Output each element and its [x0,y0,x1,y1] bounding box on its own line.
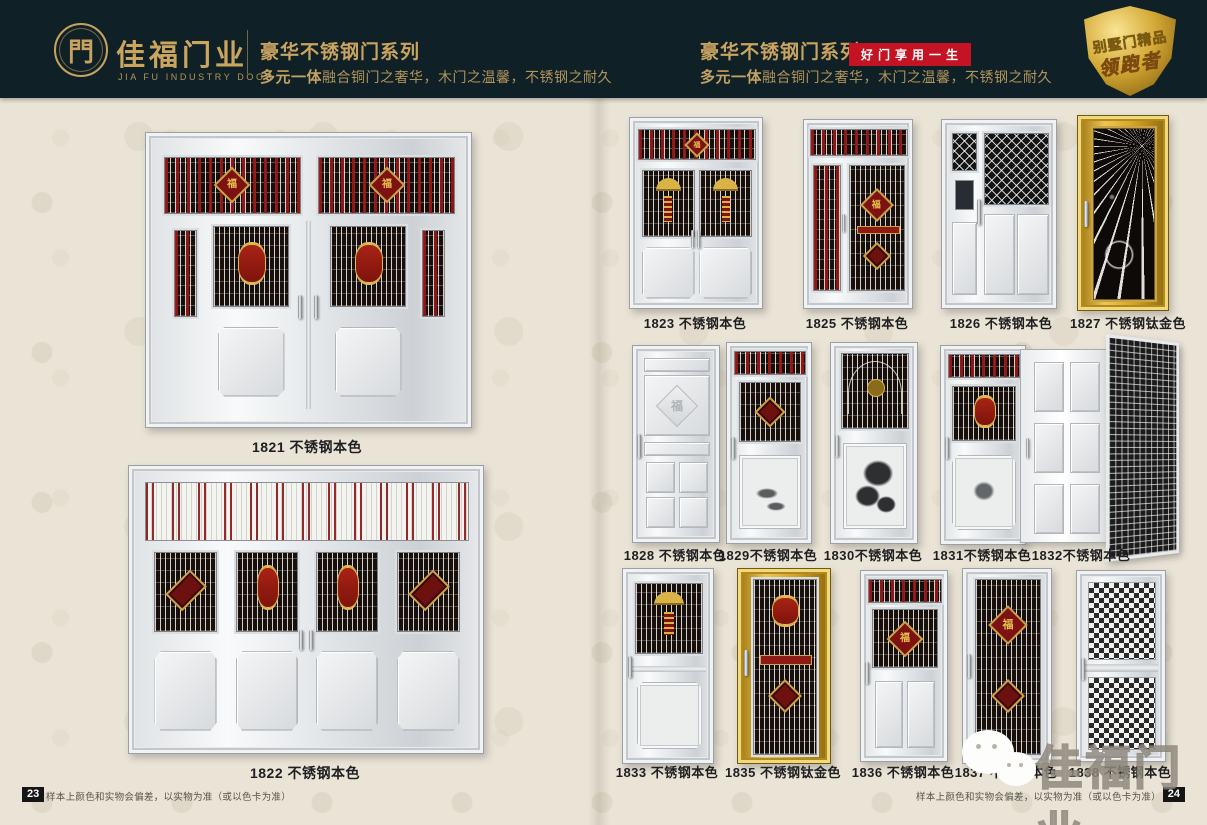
page-gutter-shadow [588,98,610,825]
door-window-grille [236,552,298,631]
series-tagline-left: 多元一体融合铜门之奢华，木门之温馨，不锈钢之耐久 [260,66,612,87]
door-1832-image [1020,345,1170,545]
door-glyph-icon: 門 [68,32,94,69]
door-1835-image [737,568,831,764]
door-window-grille [699,170,752,237]
raised-panel [1070,362,1101,412]
emboss-square [646,497,676,528]
door-window-grille [952,386,1016,441]
door-1831-image [940,345,1026,545]
catalog-spread: 門 佳福门业 JIA FU INDUSTRY DOOR 豪华不锈钢门系列 多元一… [0,0,1207,825]
lantern-motif [974,397,996,426]
door-1830-image [830,342,918,544]
door-handle [309,630,313,650]
door-handle [865,662,869,684]
brand-logo: 門 [54,23,108,77]
door-handle [835,435,839,457]
emboss-panel [316,651,378,730]
wechat-icon [962,726,1042,804]
emboss-panel [154,651,216,730]
transom-grille [810,129,907,155]
door-window-grille: 福 [872,609,938,668]
series-title-left: 豪华不锈钢门系列 [260,37,420,64]
screen-door-mesh [1106,334,1179,562]
watermark-text: 佳福门业 [1036,732,1207,825]
emboss-panel [952,222,977,295]
knot-diamond-motif [408,570,450,612]
door-1823-image: 福 [629,117,763,309]
door-handle [299,630,303,650]
series-title-right: 豪华不锈钢门系列 [700,37,860,64]
tassel-motif [722,196,730,222]
fu-diamond: 福 [368,167,405,204]
raised-panel [1034,362,1065,412]
door-caption-1833: 1833 不锈钢本色 [616,762,719,781]
door-caption-1831: 1831不锈钢本色 [933,545,1031,564]
etched-panel-fish [739,455,801,529]
etched-panel-boat [952,455,1016,530]
door-1836-image: 福 [860,570,948,762]
fu-character: 福 [900,634,910,644]
door-window-grille [739,382,801,442]
door-window-grille [753,579,818,756]
transom-grille [948,354,1021,378]
fu-character: 福 [227,180,237,190]
door-caption-1836: 1836 不锈钢本色 [852,762,955,781]
fu-diamond: 福 [988,605,1028,645]
tagline-rest: 融合铜门之奢华，木门之温馨，不锈钢之耐久 [762,69,1052,85]
door-handle [977,199,981,225]
arched-window-grille [841,353,908,429]
lantern-motif [772,597,799,625]
gold-fan-motif [656,178,681,191]
header-band: 門 佳福门业 JIA FU INDUSTRY DOOR 豪华不锈钢门系列 多元一… [0,0,1207,98]
series-tagline-right: 多元一体融合铜门之奢华，木门之温馨，不锈钢之耐久 [700,66,1052,87]
emboss-panel [699,247,752,298]
door-caption-1835: 1835 不锈钢钛金色 [725,762,841,781]
mid-rail [1084,664,1158,672]
fu-character: 福 [671,400,683,412]
door-handle [314,295,318,319]
emboss-panel [984,214,1015,295]
emboss-panel [236,651,298,730]
door-1821-image: 福 福 [145,132,472,428]
emboss-square [679,462,709,493]
emboss-strip [644,358,710,372]
lattice-window [952,133,977,171]
peacock-swirl-window [1093,128,1154,301]
corner-badge-shield: 别墅门精品 领跑者 [1084,6,1176,96]
door-handle [945,437,949,459]
raised-panel [1034,423,1065,473]
door-caption-1830: 1830不锈钢本色 [824,545,922,564]
door-handle [691,230,694,248]
door-caption-1832: 1832不锈钢本色 [1032,545,1130,564]
fu-character: 福 [693,141,700,148]
fu-diamond: 福 [684,132,709,157]
fu-diamond: 福 [860,188,894,222]
red-diamond-motif [754,396,785,427]
brand-name: 佳福门业 [116,32,248,74]
door-1827-image [1077,115,1169,311]
door-caption-1827: 1827 不锈钢钛金色 [1070,313,1186,332]
door-window-grille [330,226,407,307]
six-panel-door [1020,349,1112,543]
side-panel-grille [422,230,445,317]
door-window-grille [397,552,459,631]
door-1822-image [128,465,484,754]
red-band-motif [857,226,900,234]
page-number-left: 23 [22,787,44,802]
transom-grille-light [145,482,469,541]
slogan-badge: 好门享用一生 [849,43,971,66]
door-caption-1825: 1825 不锈钢本色 [806,313,909,332]
door-caption-1823: 1823 不锈钢本色 [644,313,747,332]
door-handle [298,295,302,319]
lantern-motif [257,567,279,608]
door-caption-1828: 1828 不锈钢本色 [624,545,727,564]
door-window-grille [316,552,378,631]
door-1833-image [622,568,714,764]
bubble-eye [1019,763,1023,767]
door-handle [1084,201,1088,227]
raised-panel [875,681,903,748]
tassel-motif [664,196,672,222]
tagline-bold: 多元一体 [700,69,762,86]
door-1825-image: 福 [803,119,913,309]
knot-diamond-motif [991,679,1025,713]
tassel-motif [664,612,675,636]
fu-diamond: 福 [214,167,251,204]
lantern-motif [337,567,359,608]
gold-fan-motif [654,592,683,605]
perforated-mesh-panel [1088,582,1155,660]
door-1829-image [726,342,812,544]
door-handle [744,650,748,676]
emboss-square [679,497,709,528]
header-divider [247,30,248,74]
raised-panel [907,681,935,748]
red-band-motif [760,655,812,666]
emboss-strip [644,442,710,456]
knot-diamond-motif [863,241,891,269]
door-window-grille [154,552,216,631]
transom-grille: 福 [638,129,756,160]
etched-panel [637,682,702,750]
intercom-panel [955,180,974,210]
knot-diamond-motif [768,679,802,713]
fu-character: 福 [1002,620,1013,631]
raised-panel [1070,484,1101,534]
transom-grille [734,351,807,375]
chat-bubble-small [996,752,1036,786]
bubble-eye [1007,763,1011,767]
lantern-motif [355,244,384,283]
gold-fan-motif [713,178,738,191]
door-caption-1829: 1829不锈钢本色 [719,545,817,564]
door-handle [1026,438,1029,458]
door-window-grille: 福 [849,165,905,291]
door-window-grille [642,170,695,237]
etched-panel-lotus [843,443,907,529]
transom-grille: 福 [318,157,455,215]
raised-panel [1034,484,1065,534]
door-handle [731,437,735,459]
door-handle [1081,658,1085,680]
brand-name-en: JIA FU INDUSTRY DOOR [118,72,275,82]
door-window-grille [213,226,290,307]
raised-panel [1070,423,1101,473]
fu-character: 福 [873,201,882,210]
door-1826-image [941,119,1057,309]
fu-diamond: 福 [887,620,924,657]
fu-character: 福 [382,180,392,190]
emboss-panel [642,247,695,298]
emboss-panel [1017,214,1049,295]
door-caption-1826: 1826 不锈钢本色 [950,313,1053,332]
door-handle [697,230,700,248]
bubble-eye [976,744,981,749]
emboss-panel [218,327,285,397]
door-caption-1822: 1822 不锈钢本色 [250,763,360,783]
door-handle [842,214,845,232]
side-leaf-grille [813,165,841,291]
door-window-grille [635,583,704,655]
side-panel-grille [174,230,197,317]
lattice-window [984,133,1049,205]
transom-grille: 福 [164,157,301,215]
lantern-motif [238,244,267,283]
door-1828-image: 福 [632,345,720,543]
transom-grille [868,579,942,604]
emboss-square [646,462,676,493]
knot-diamond-motif [165,570,207,612]
bubble-eye [992,744,997,749]
fu-diamond-embossed: 福 [656,385,698,427]
tagline-rest: 融合铜门之奢华，木门之温馨，不锈钢之耐久 [322,69,612,85]
emboss-panel: 福 [644,375,710,436]
footer-note-left: 样本上颜色和实物会偏差，以实物为准（或以色卡为准） [46,789,291,803]
door-handle [628,656,632,678]
door-handle [967,654,971,678]
tagline-bold: 多元一体 [260,69,322,86]
door-caption-1821: 1821 不锈钢本色 [252,437,362,457]
emboss-panel [397,651,459,730]
emboss-panel [335,327,402,397]
door-handle [637,434,641,458]
center-mullion [306,221,311,409]
mid-rail [630,666,706,672]
